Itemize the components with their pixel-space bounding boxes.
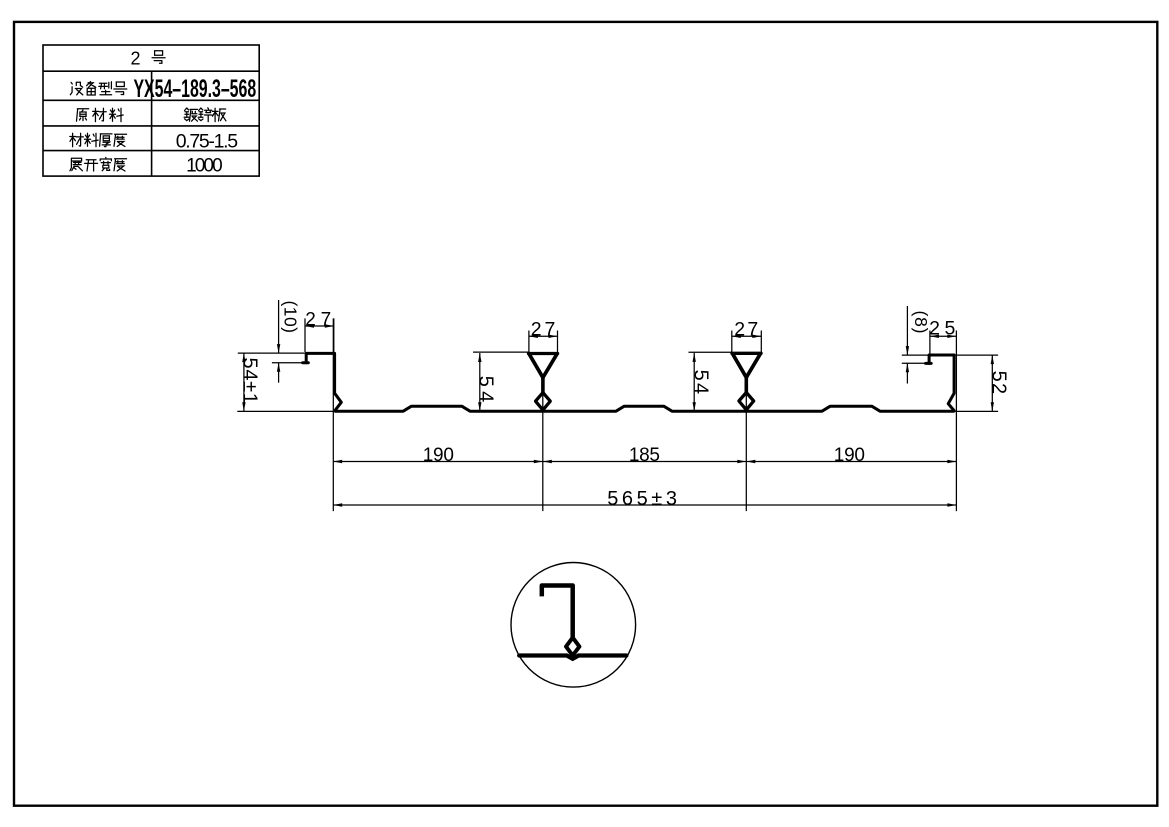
svg-text:(10): (10) xyxy=(281,301,301,334)
svg-text:54±1: 54±1 xyxy=(239,358,261,405)
svg-text:0.75-1.5: 0.75-1.5 xyxy=(176,131,239,153)
svg-text:1000: 1000 xyxy=(186,155,223,176)
svg-text:565±3: 565±3 xyxy=(607,488,677,510)
svg-text:185: 185 xyxy=(629,445,660,466)
svg-text:2: 2 xyxy=(130,49,140,69)
svg-text:190: 190 xyxy=(423,445,454,466)
svg-text:52: 52 xyxy=(988,371,1010,395)
svg-text:190: 190 xyxy=(834,445,865,466)
svg-text:YX54–189.3–568: YX54–189.3–568 xyxy=(133,76,256,103)
svg-text:(8): (8) xyxy=(911,311,931,334)
